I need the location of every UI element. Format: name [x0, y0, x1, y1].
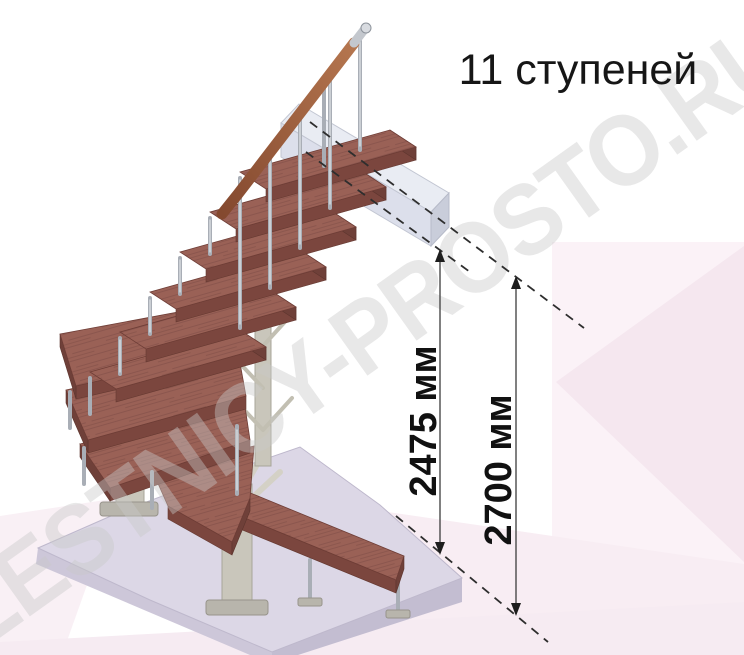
staircase-illustration: LESTNICY-PROSTO.RU 2475 мм 2700 мм 11 ст…	[0, 0, 744, 655]
staircase-diagram: LESTNICY-PROSTO.RU 2475 мм 2700 мм 11 ст…	[0, 0, 744, 655]
dimension-label-2475: 2475 мм	[403, 345, 445, 496]
leg-foot	[298, 598, 322, 606]
step-count-title: 11 ступеней	[459, 46, 698, 94]
leg-foot	[386, 610, 410, 618]
column-base-plate	[206, 600, 268, 615]
handrail-end-cap	[361, 23, 371, 33]
dimension-label-2700: 2700 мм	[478, 394, 520, 545]
